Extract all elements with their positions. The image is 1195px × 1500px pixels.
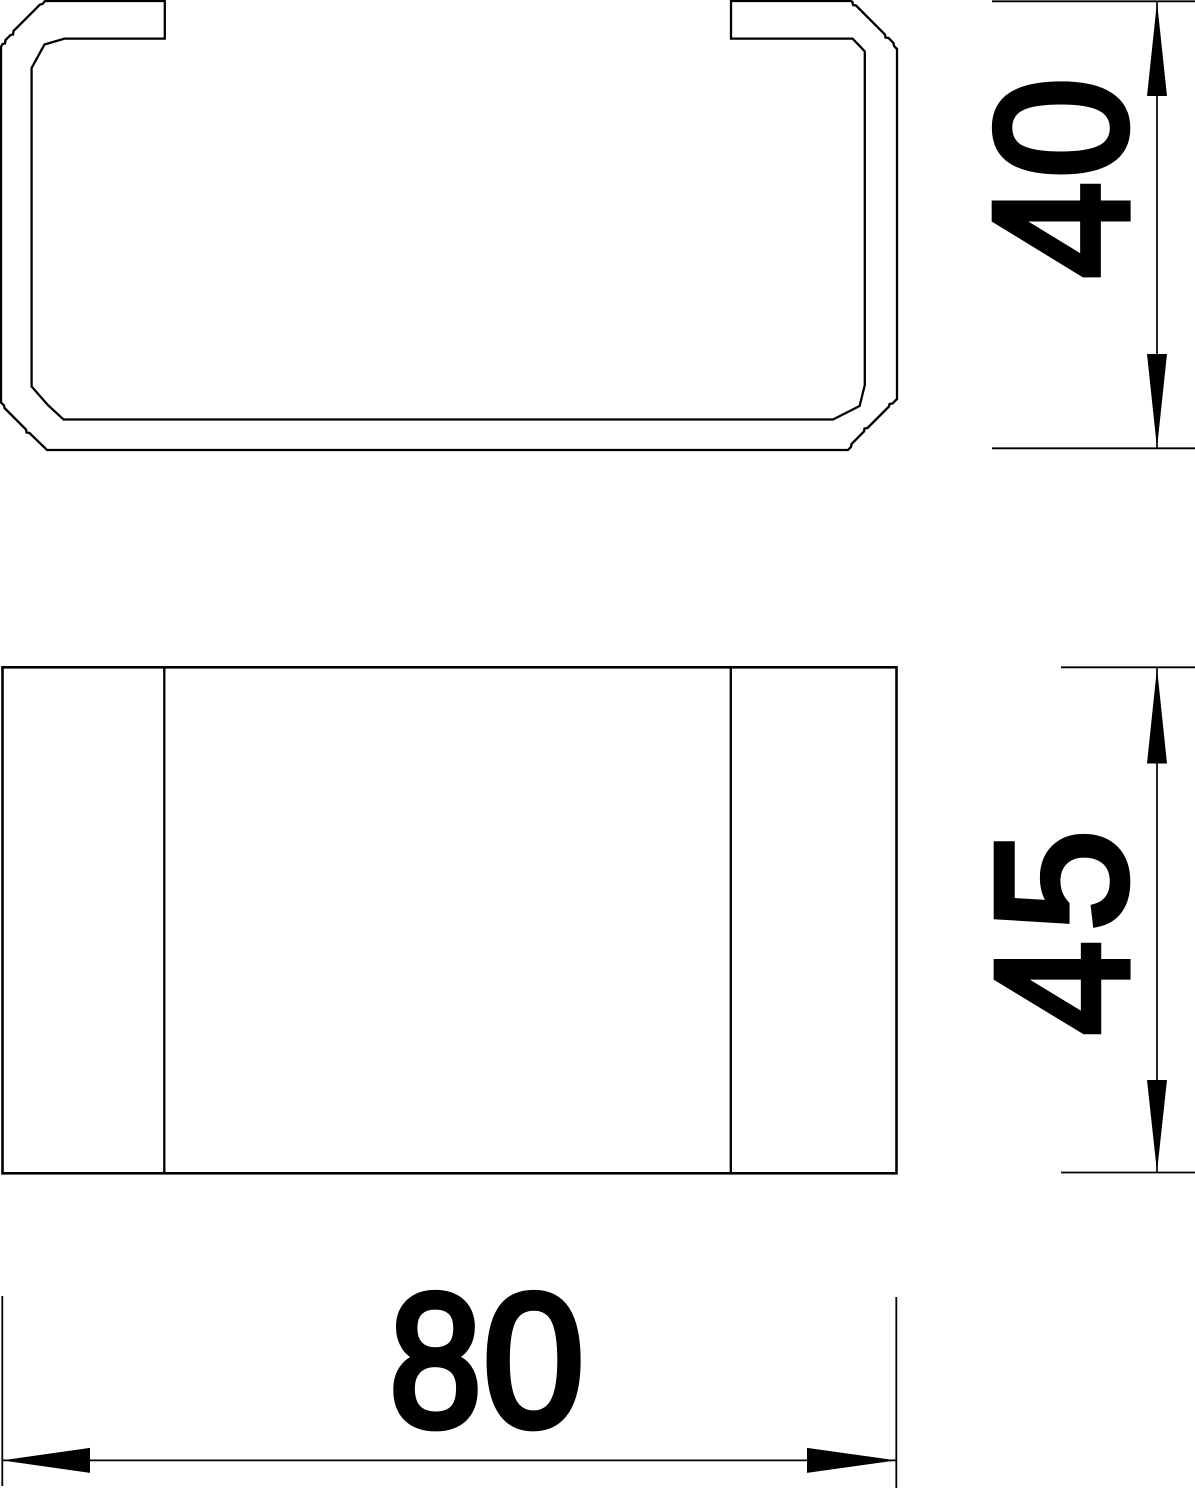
svg-text:4: 4 [956,941,1167,1035]
svg-text:5: 5 [957,830,1164,931]
svg-text:0: 0 [483,1255,584,1466]
svg-text:8: 8 [389,1255,481,1467]
svg-text:0: 0 [957,78,1164,178]
svg-text:4: 4 [954,182,1168,278]
